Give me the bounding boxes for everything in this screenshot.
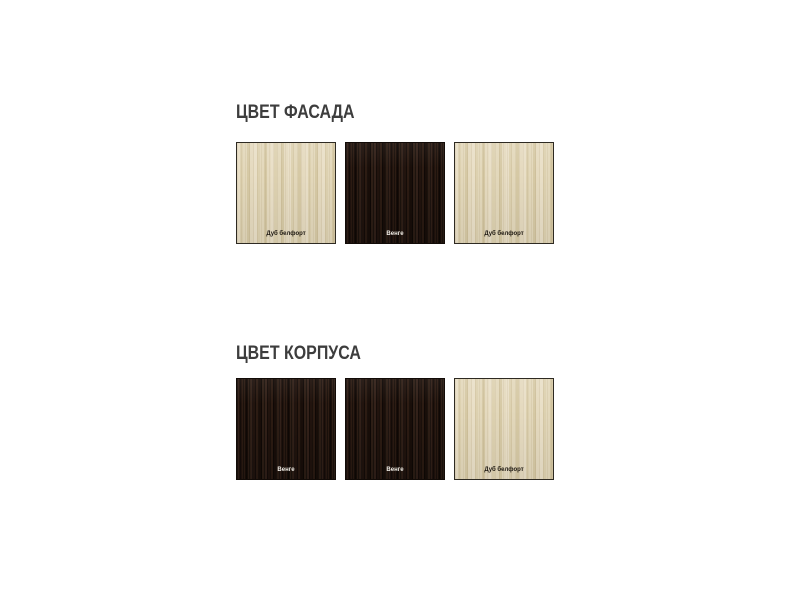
facade-color-swatch-row: Дуб белфорт Венге Дуб белфорт	[236, 142, 554, 244]
swatch-label: Венге	[346, 467, 444, 474]
color-options-page: ЦВЕТ ФАСАДА Дуб белфорт Венге Дуб белфор…	[0, 0, 800, 600]
swatch-label: Венге	[346, 231, 444, 238]
swatch-label: Дуб белфорт	[455, 231, 553, 238]
facade-swatch-oak-belfort-2[interactable]: Дуб белфорт	[454, 142, 554, 244]
swatch-label: Дуб белфорт	[455, 467, 553, 474]
facade-swatch-wenge[interactable]: Венге	[345, 142, 445, 244]
body-swatch-wenge-2[interactable]: Венге	[345, 378, 445, 480]
body-color-section-title: ЦВЕТ КОРПУСА	[236, 344, 361, 363]
swatch-label: Дуб белфорт	[237, 231, 335, 238]
body-color-swatch-row: Венге Венге Дуб белфорт	[236, 378, 554, 480]
body-swatch-oak-belfort[interactable]: Дуб белфорт	[454, 378, 554, 480]
body-swatch-wenge-1[interactable]: Венге	[236, 378, 336, 480]
facade-swatch-oak-belfort-1[interactable]: Дуб белфорт	[236, 142, 336, 244]
facade-color-section-title: ЦВЕТ ФАСАДА	[236, 103, 355, 122]
swatch-label: Венге	[237, 467, 335, 474]
